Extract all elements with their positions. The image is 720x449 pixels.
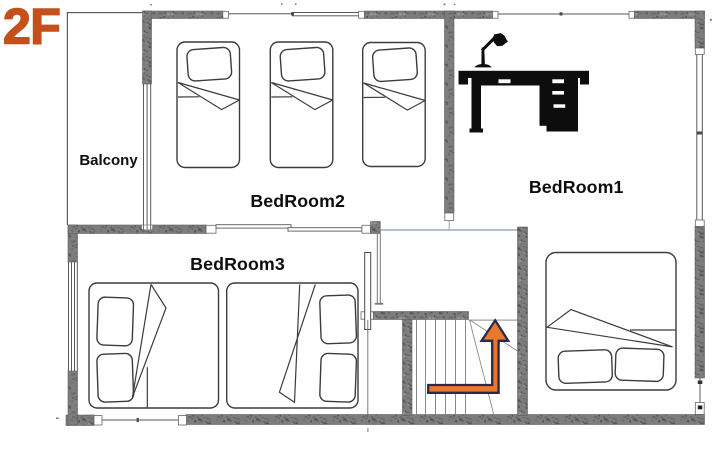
svg-text:Balcony: Balcony bbox=[79, 152, 138, 169]
svg-text:BedRoom1: BedRoom1 bbox=[529, 177, 624, 197]
svg-text:2F: 2F bbox=[3, 0, 60, 55]
svg-text:BedRoom2: BedRoom2 bbox=[250, 191, 345, 211]
svg-text:BedRoom3: BedRoom3 bbox=[190, 254, 285, 274]
